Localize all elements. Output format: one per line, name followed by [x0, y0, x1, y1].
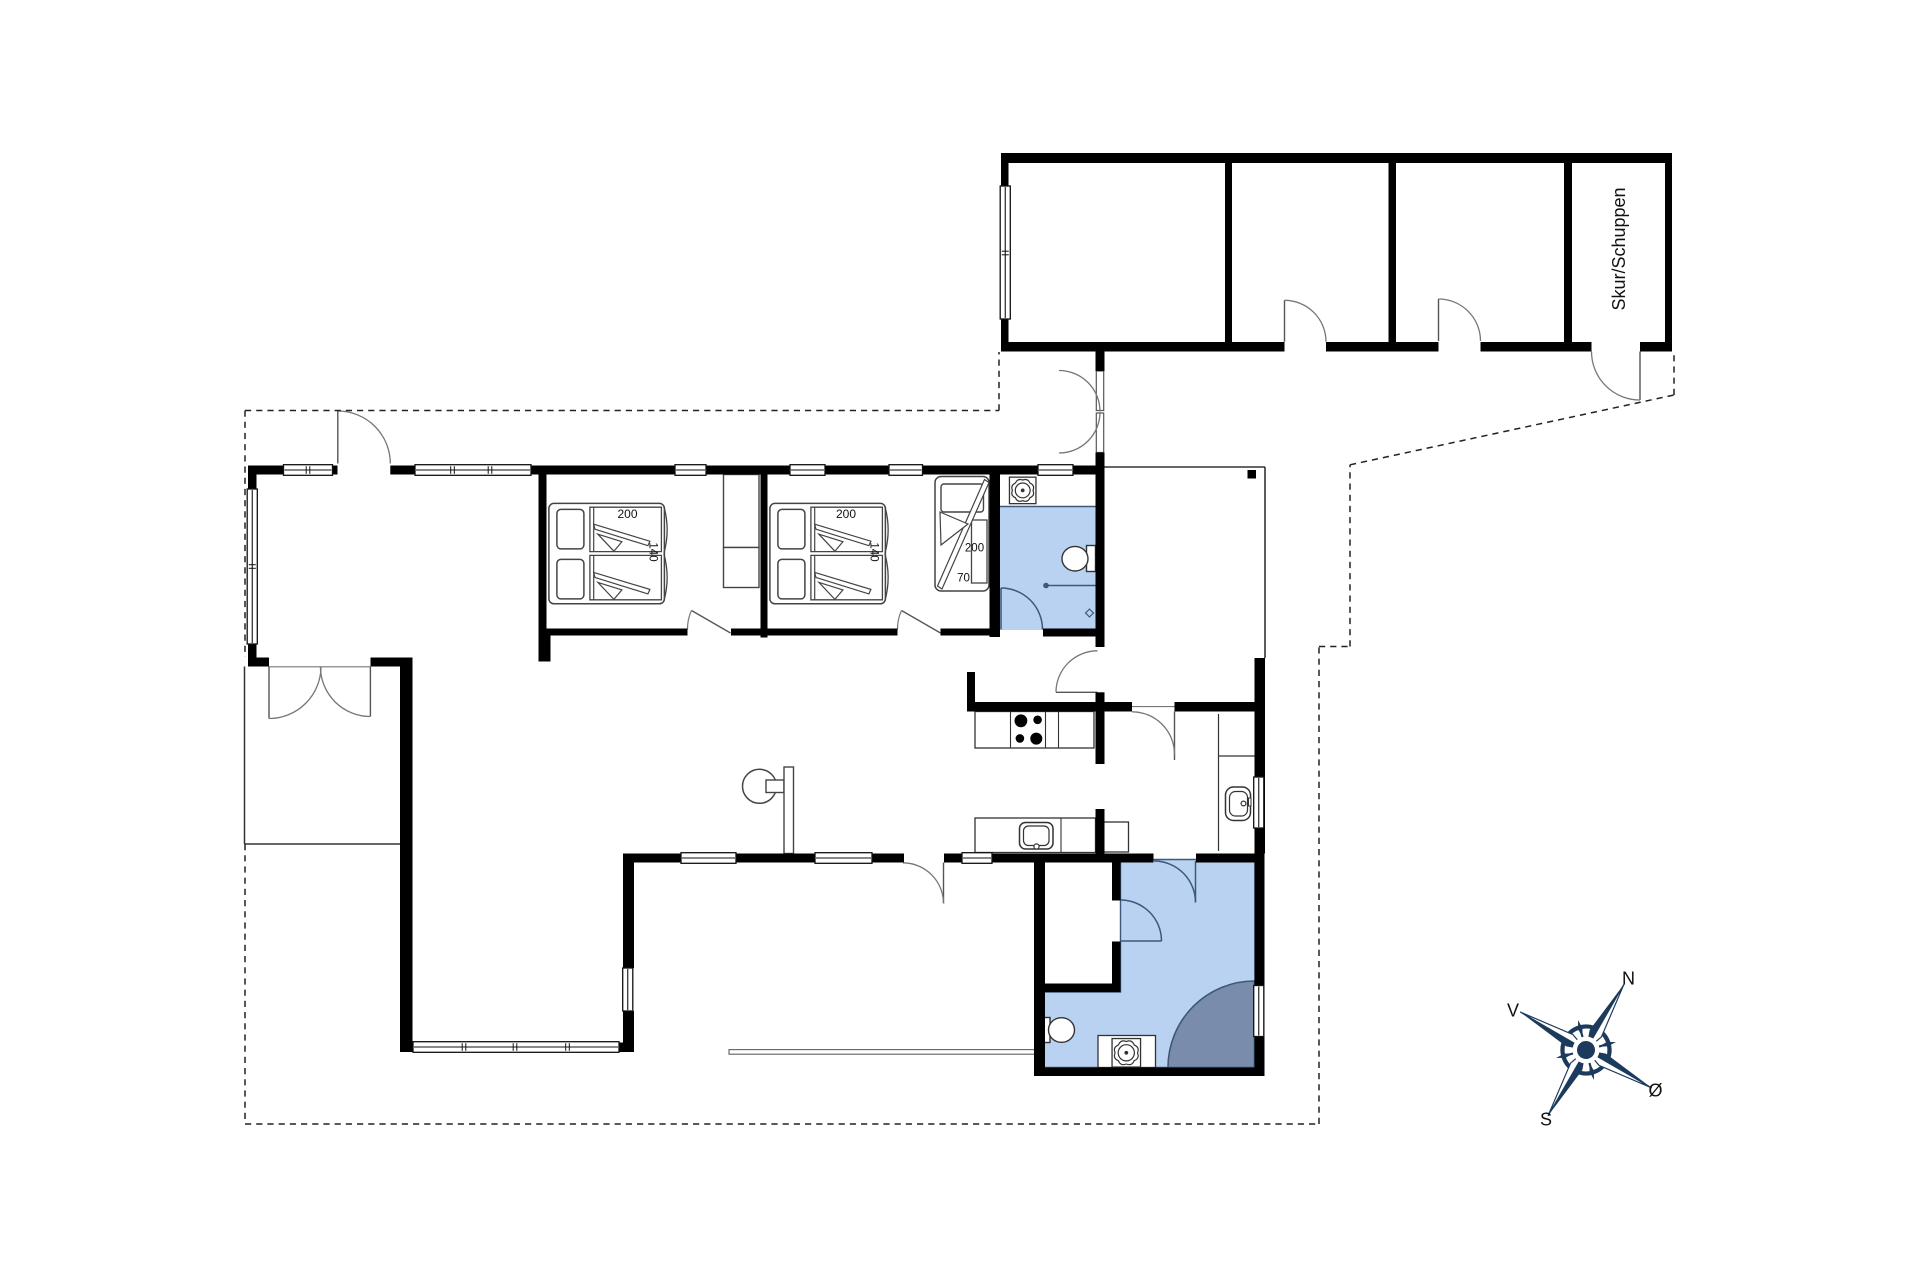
svg-text:200: 200	[965, 543, 984, 555]
svg-text:200: 200	[836, 507, 856, 521]
svg-text:140: 140	[868, 542, 880, 561]
svg-text:70: 70	[957, 573, 970, 585]
svg-text:V: V	[1507, 1001, 1519, 1021]
svg-text:140: 140	[647, 542, 659, 561]
svg-text:Skur/Schuppen: Skur/Schuppen	[1609, 187, 1629, 310]
svg-text:Ø: Ø	[1648, 1081, 1662, 1101]
svg-text:N: N	[1622, 969, 1635, 989]
svg-text:S: S	[1540, 1110, 1552, 1130]
svg-text:200: 200	[617, 507, 637, 521]
